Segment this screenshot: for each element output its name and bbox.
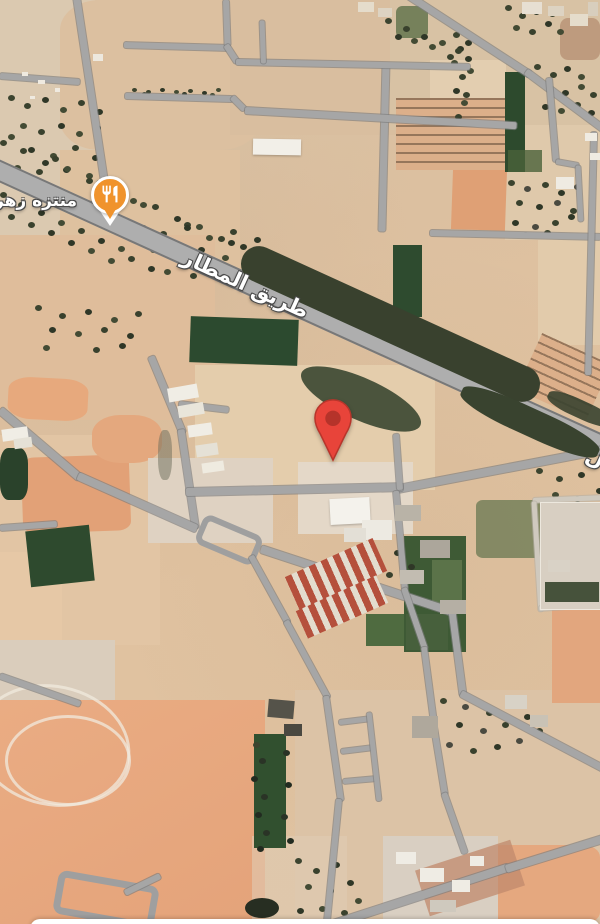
restaurant-icon [100,184,120,204]
poi-marker-tail-inner [104,209,116,219]
road-label-airport-road: طريق المطار [170,241,321,327]
map-pin-icon [310,398,356,462]
road-label-fragment-text: ل [582,443,600,472]
road-label-text: طريق المطار [178,245,312,323]
labels-layer: طريق المطار ل منتزه زهر [0,0,600,924]
poi-label: منتزه زهر [0,191,91,211]
poi-label-text: منتزه زهر [0,191,77,211]
destination-pin[interactable] [310,398,356,462]
road-label-fragment: ل [582,443,600,472]
map-canvas[interactable]: طريق المطار ل منتزه زهر [0,0,600,924]
bottom-sheet-handle[interactable] [30,919,600,924]
poi-marker-restaurant[interactable] [86,176,134,232]
